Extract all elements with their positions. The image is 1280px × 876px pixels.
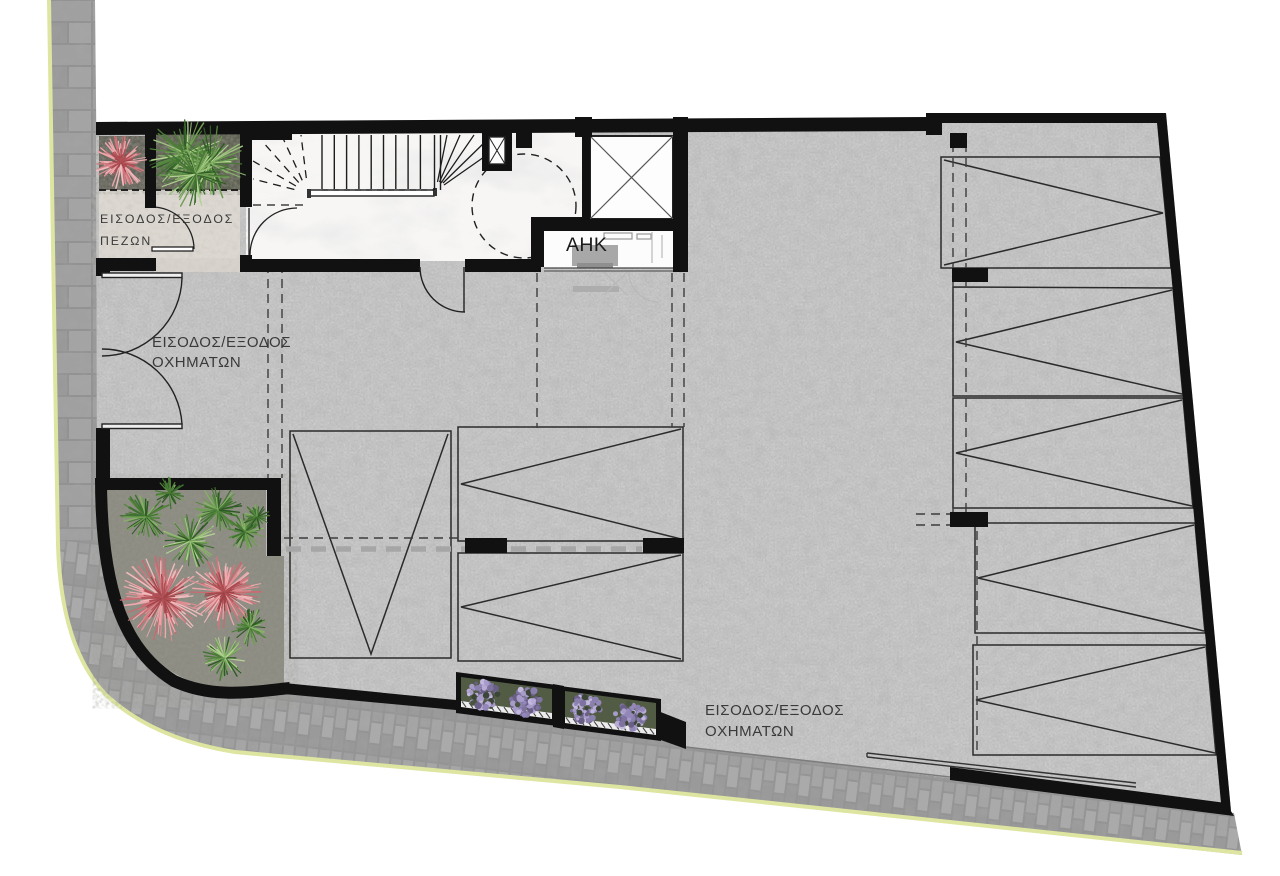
svg-text:ΟΧΗΜΑΤΩΝ: ΟΧΗΜΑΤΩΝ: [705, 723, 794, 740]
svg-text:ΠΕΖΩΝ: ΠΕΖΩΝ: [100, 234, 152, 248]
svg-text:ΕΙΣΟΔΟΣ/ΕΞΟΔΟΣ: ΕΙΣΟΔΟΣ/ΕΞΟΔΟΣ: [705, 702, 844, 719]
svg-text:ΕΙΣΟΔΟΣ/ΕΞΟΔΟΣ: ΕΙΣΟΔΟΣ/ΕΞΟΔΟΣ: [100, 212, 234, 226]
svg-text:ΟΧΗΜΑΤΩΝ: ΟΧΗΜΑΤΩΝ: [152, 354, 241, 371]
svg-text:ΕΙΣΟΔΟΣ/ΕΞΟΔΟΣ: ΕΙΣΟΔΟΣ/ΕΞΟΔΟΣ: [152, 334, 291, 351]
svg-text:ΑΗΚ: ΑΗΚ: [566, 234, 607, 256]
